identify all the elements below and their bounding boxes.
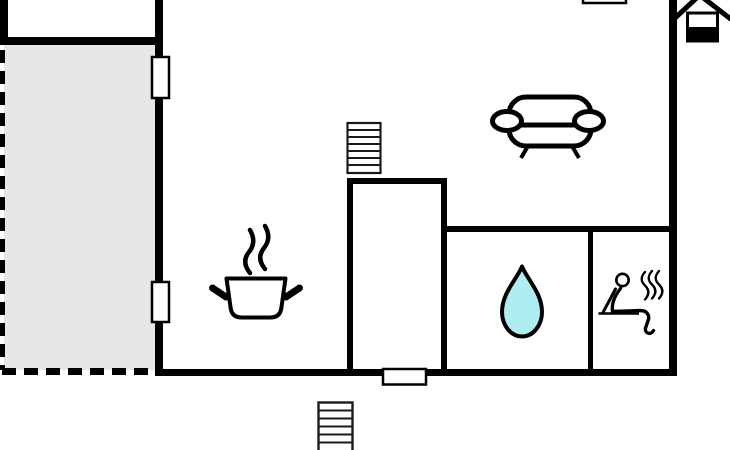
terrace-fill — [4, 45, 156, 370]
wall-bathroom-sauna-divider — [588, 230, 593, 369]
wall-stairwell-right — [441, 178, 447, 369]
floor-plan-page — [0, 0, 730, 450]
window-icon-left-upper — [152, 57, 169, 98]
terrace-area — [2, 45, 156, 372]
stairs-icon-upper — [348, 123, 381, 173]
window-icon-left-lower — [152, 282, 169, 322]
sauna-person-head — [616, 274, 628, 286]
wall-main-right — [669, 0, 677, 376]
wall-stairwell-left — [347, 178, 353, 369]
birdhouse-body-dark-half — [688, 27, 718, 41]
stairs-icon-lower — [319, 403, 353, 450]
floor-plan-drawing — [0, 0, 730, 450]
door-icon-bottom — [383, 369, 426, 385]
wall-upper-room-bottom — [0, 37, 163, 45]
pot-body — [227, 279, 286, 318]
sofa-armrest-right — [575, 112, 604, 131]
wall-bathroom-top — [447, 226, 677, 232]
window-icon-top-edge — [583, 0, 626, 3]
wall-stairwell-top — [347, 178, 447, 184]
sofa-armrest-left — [493, 112, 522, 131]
